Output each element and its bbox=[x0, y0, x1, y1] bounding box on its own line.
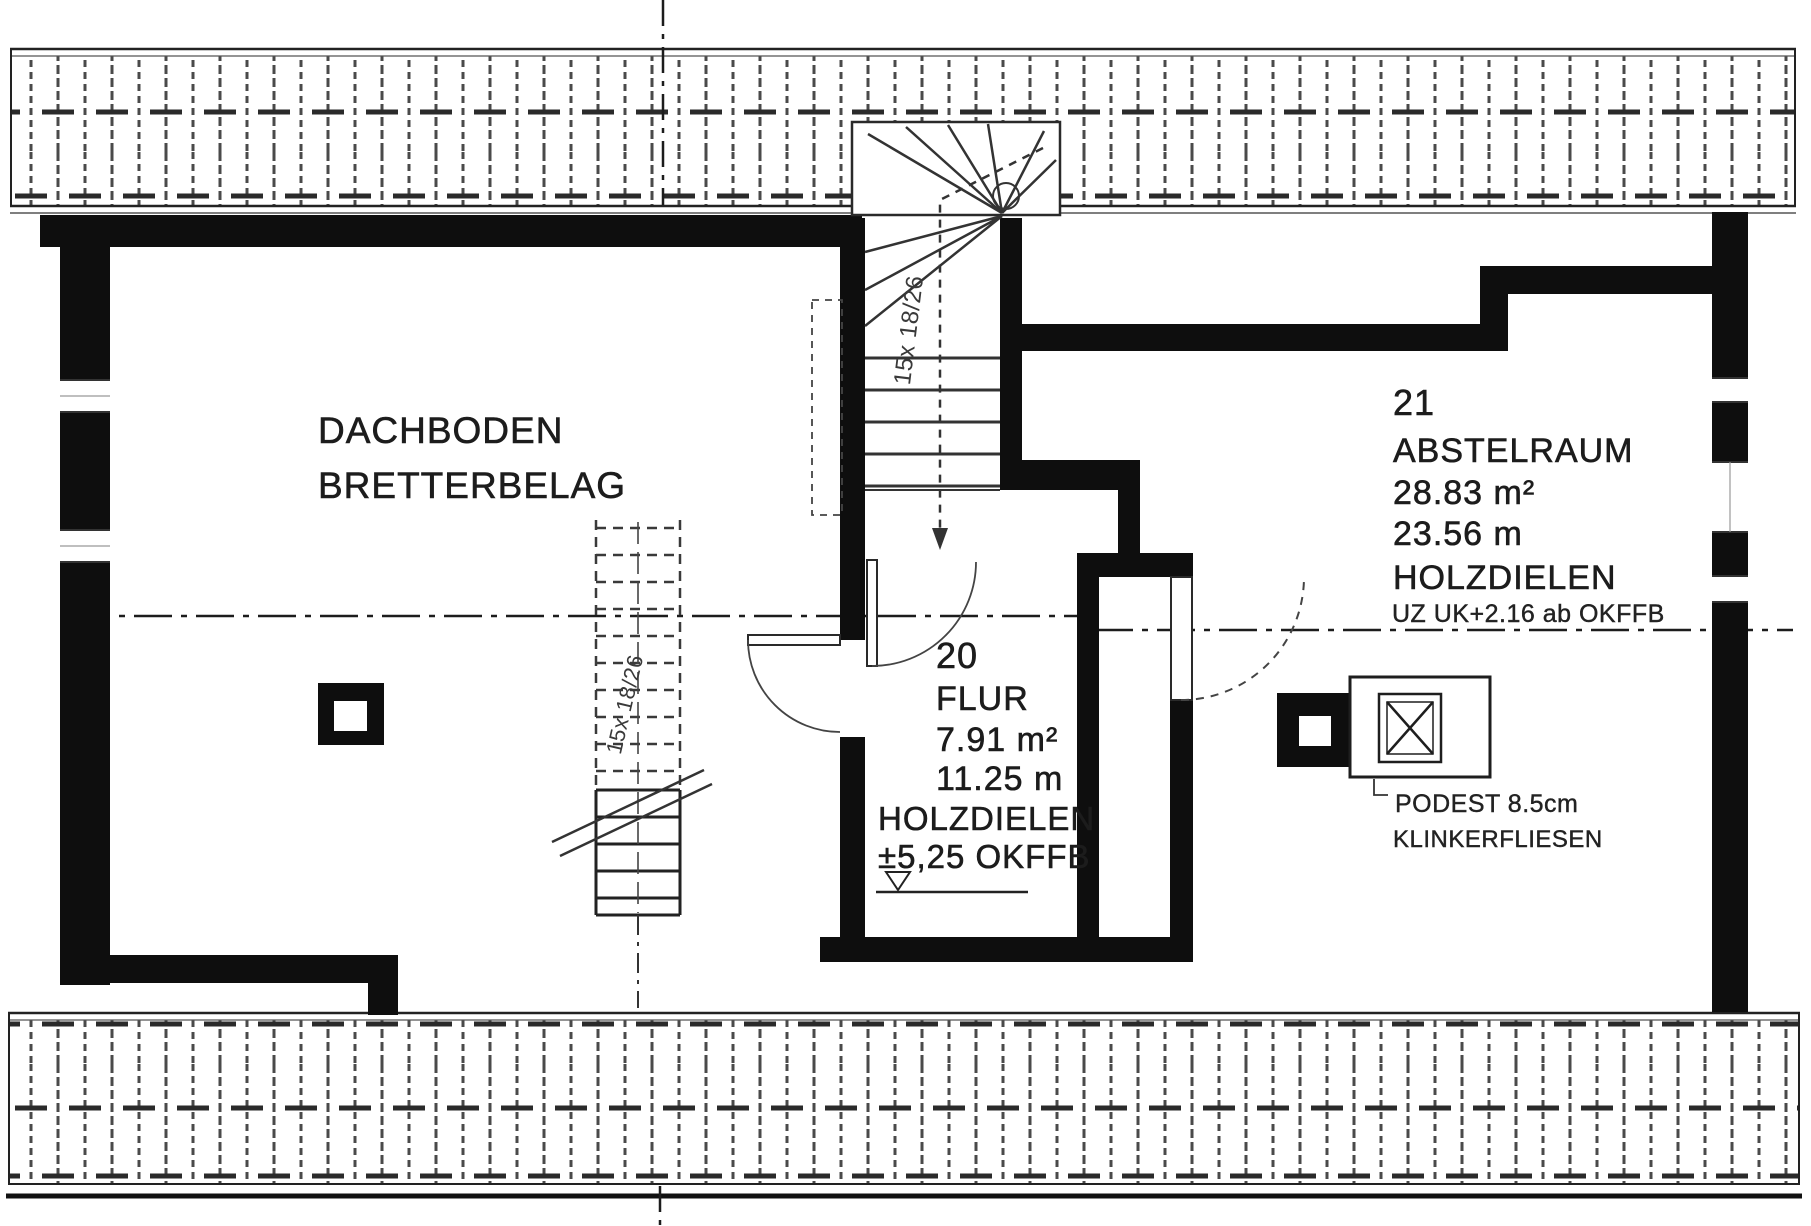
wall-flur-bottom bbox=[820, 937, 1193, 962]
wall-abstellraum-top-left bbox=[1022, 324, 1505, 351]
wall-landing-right bbox=[1000, 460, 1140, 490]
podest-material: KLINKERFLIESEN bbox=[1393, 826, 1603, 853]
window-left-2 bbox=[60, 530, 110, 562]
abstellraum-beam-note: UZ UK+2.16 ab OKFFB bbox=[1392, 600, 1665, 628]
flur-area: 7.91 m² bbox=[936, 721, 1058, 759]
wall-stair-left bbox=[840, 218, 865, 640]
wall-left bbox=[60, 215, 110, 985]
wall-stair-right bbox=[1000, 218, 1022, 462]
floorplan-drawing: 15x 18/26 15x 18/26 bbox=[0, 0, 1811, 1226]
wall-bottom-dachboden bbox=[60, 955, 395, 983]
window-right-3 bbox=[1712, 576, 1748, 602]
wall-top-left bbox=[40, 215, 862, 247]
window-left-1 bbox=[60, 380, 110, 412]
roof-band-bottom bbox=[6, 1013, 1802, 1196]
wall-flur-right bbox=[1077, 553, 1099, 962]
wall-bottom-jog bbox=[368, 955, 398, 1015]
wall-right bbox=[1712, 212, 1748, 1012]
wall-closet-right bbox=[1170, 700, 1193, 962]
dachboden-name: DACHBODEN bbox=[318, 410, 563, 451]
flur-level: ±5,25 OKFFB bbox=[878, 838, 1091, 875]
podest bbox=[1350, 677, 1490, 795]
wall-niche-step bbox=[1118, 488, 1140, 558]
flur-floor: HOLZDIELEN bbox=[878, 800, 1095, 837]
abstellraum-perimeter: 23.56 m bbox=[1393, 515, 1523, 553]
chimney-abstellraum bbox=[1277, 693, 1350, 767]
floorplan-page: 15x 18/26 15x 18/26 bbox=[0, 0, 1811, 1226]
chimney-dachboden bbox=[318, 683, 384, 745]
window-right-1 bbox=[1712, 378, 1748, 402]
window-right-2 bbox=[1712, 462, 1748, 532]
abstellraum-area: 28.83 m² bbox=[1393, 474, 1535, 512]
flur-name: FLUR bbox=[936, 680, 1029, 718]
wall-abstellraum-step bbox=[1480, 266, 1508, 351]
flur-perimeter: 11.25 m bbox=[936, 760, 1063, 798]
wall-abstellraum-top-right bbox=[1480, 266, 1712, 294]
podest-title: PODEST 8.5cm bbox=[1395, 790, 1578, 818]
dachboden-floor: BRETTERBELAG bbox=[318, 465, 626, 506]
abstellraum-floor: HOLZDIELEN bbox=[1393, 559, 1617, 597]
wall-flur-left-lower bbox=[840, 737, 865, 959]
abstellraum-number: 21 bbox=[1393, 382, 1435, 423]
flur-number: 20 bbox=[936, 635, 978, 676]
abstellraum-name: ABSTELRAUM bbox=[1393, 432, 1634, 470]
